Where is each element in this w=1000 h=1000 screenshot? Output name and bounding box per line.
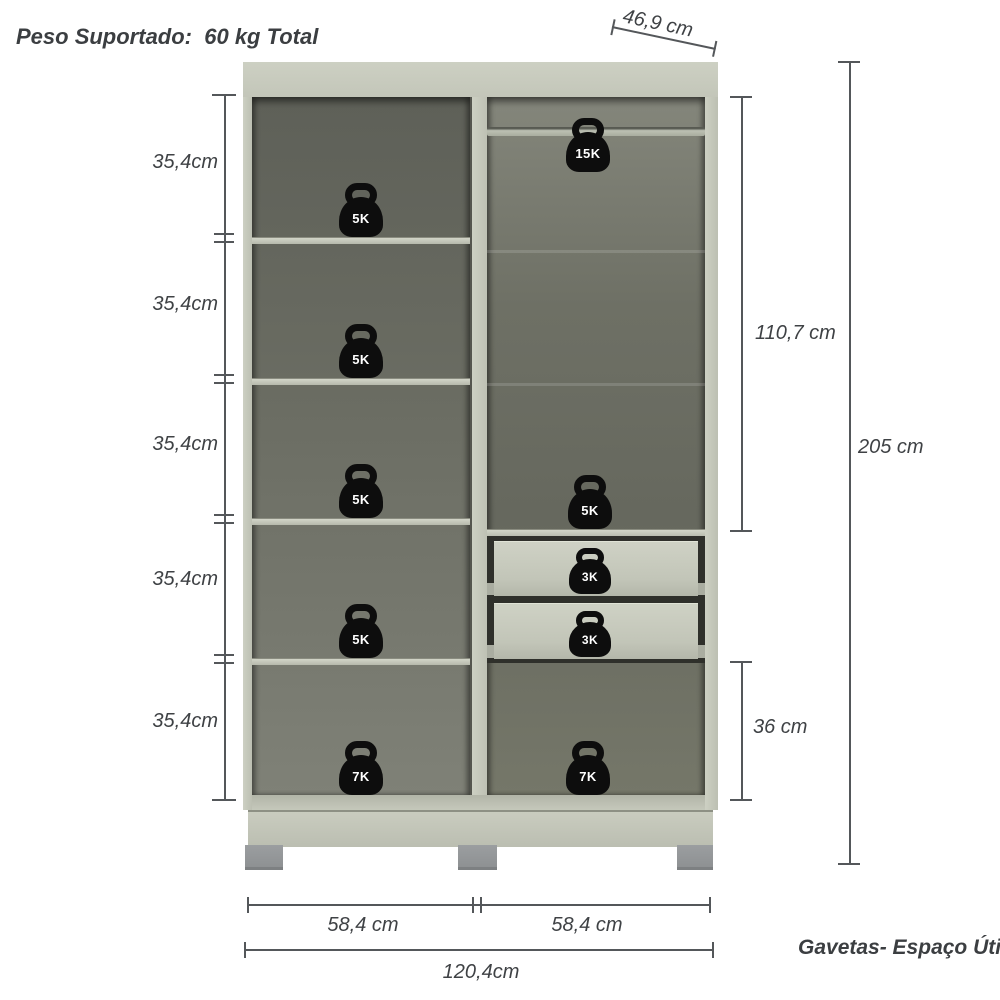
kettlebell-5k: 5K [339,183,383,237]
cabinet-bottom-panel [252,795,705,810]
kettlebell-weight-label: 7K [339,769,383,784]
hanging-height-label: 110,7 cm [755,322,836,345]
dim-tick [730,530,752,532]
dim-tick [214,241,234,243]
kettlebell-3k: 3K [569,548,611,594]
kettlebell-5k: 5K [339,324,383,378]
dim-tick [214,374,234,376]
kettlebell-5k: 5K [339,604,383,658]
dim-tick [244,942,246,958]
kettlebell-weight-label: 3K [569,570,611,584]
shelf-height-label: 35,4cm [128,151,218,174]
left-width-label: 58,4 cm [303,914,423,937]
dim-tick [214,233,234,235]
shelf-height-label: 35,4cm [128,568,218,591]
right-column-interior [487,97,705,795]
split-width-line [248,904,710,906]
shelf-height-label: 35,4cm [128,433,218,456]
drawer-notes: Gavetas- Espaço Útil Altura- 10 cm Profu… [798,888,1000,1000]
kettlebell-7k: 7K [566,741,610,795]
kettlebell-weight-label: 15K [566,146,610,161]
depth-dimension-label: 46,9 cm [602,1,714,46]
kettlebell-weight-label: 5K [339,632,383,647]
drawer-notes-title: Gavetas- Espaço Útil [798,936,1000,960]
drawer-rail [698,583,705,595]
kettlebell-weight-label: 5K [339,352,383,367]
dim-tick [212,94,236,96]
shelf-4 [252,658,470,665]
cabinet-plinth [248,810,713,847]
kettlebell-weight-label: 5K [339,492,383,507]
kettlebell-7k: 7K [339,741,383,795]
kettlebell-weight-label: 7K [566,769,610,784]
foot-left [245,845,283,870]
shelf-3 [252,518,470,525]
dim-tick [480,897,482,913]
foot-right [677,845,713,870]
kettlebell-5k: 5K [568,475,612,529]
back-panel-seam-1 [487,250,705,253]
dim-tick [214,662,234,664]
kettlebell-3k: 3K [569,611,611,657]
dim-tick [214,654,234,656]
kettlebell-15k: 15K [566,118,610,172]
dim-tick [838,61,860,63]
kettlebell-weight-label: 3K [569,633,611,647]
supported-weight-title: Peso Suportado: 60 kg Total [16,24,318,50]
kettlebell-5k: 5K [339,464,383,518]
shelf-height-label: 35,4cm [128,293,218,316]
shelf-1 [252,237,470,244]
dim-tick [712,942,714,958]
drawer-rail [698,645,705,658]
cabinet-left-wall [243,97,252,810]
shelf-2 [252,378,470,385]
dim-tick [838,863,860,865]
total-width-label: 120,4cm [421,961,541,984]
shelf-height-label: 35,4cm [128,710,218,733]
bottom-space-label: 36 cm [753,716,807,739]
dim-tick [472,897,474,913]
dim-tick [247,897,249,913]
kettlebell-weight-label: 5K [568,503,612,518]
dim-tick [214,514,234,516]
cabinet-right-wall [705,97,718,810]
cabinet-top-panel [243,62,718,98]
dim-tick [730,799,752,801]
wardrobe-dimension-diagram: Peso Suportado: 60 kg Total 5K 5K 5K 5K [0,0,1000,1000]
drawer-rail [487,645,494,658]
kettlebell-weight-label: 5K [339,211,383,226]
dim-tick [212,799,236,801]
hanging-height-line [741,97,743,532]
dim-tick [730,661,752,663]
back-panel-seam-2 [487,383,705,386]
dim-tick [709,897,711,913]
right-width-label: 58,4 cm [527,914,647,937]
total-width-line [245,949,713,951]
dim-tick [214,382,234,384]
left-dimension-line [224,95,226,801]
dim-tick [730,96,752,98]
foot-center [458,845,497,870]
bottom-space-line [741,662,743,801]
total-height-label: 205 cm [858,436,924,459]
total-height-line [849,62,851,865]
drawer-rail [487,583,494,595]
dim-tick [214,522,234,524]
